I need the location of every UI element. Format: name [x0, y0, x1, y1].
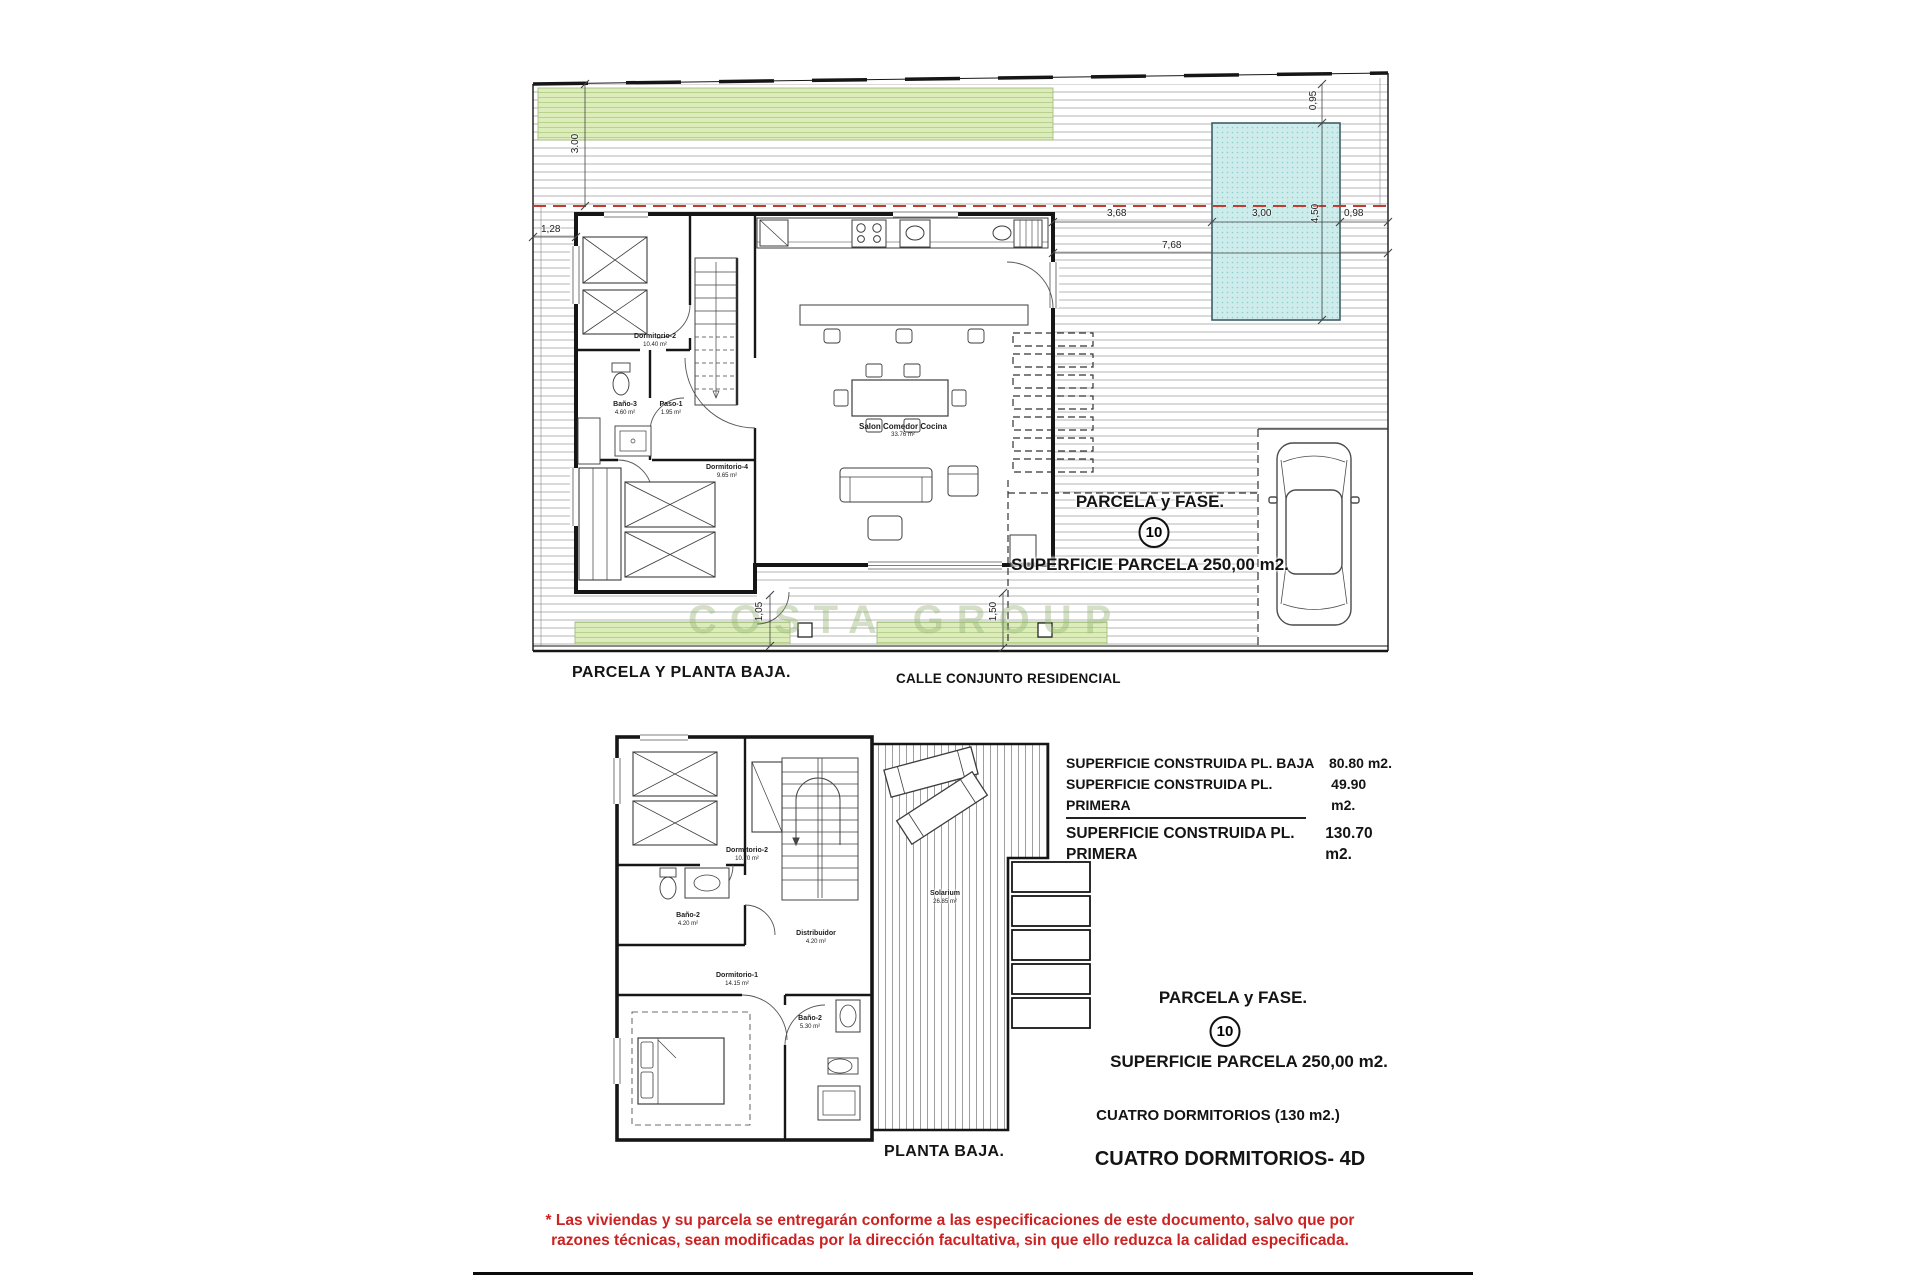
coffee-table-icon: [868, 516, 902, 540]
dim-pool-to-edge: 0,98: [1344, 208, 1363, 219]
room-label-bano2-upper: Baño-24.20 m²: [676, 912, 700, 928]
summary-row-total: SUPERFICIE CONSTRUIDA PL. PRIMERA130.70 …: [1066, 823, 1392, 865]
info-parcel-number-badge: 10: [1210, 1016, 1241, 1047]
armchair-icon: [948, 466, 978, 496]
dim-pool-offset: 0,95: [1308, 91, 1319, 110]
summary-row-primera: SUPERFICIE CONSTRUIDA PL. PRIMERA49.90 m…: [1066, 774, 1392, 816]
disclaimer-line2: razones técnicas, sean modificadas por l…: [430, 1231, 1470, 1251]
bathroom2-fixtures-upper: [660, 868, 729, 899]
street-label: CALLE CONJUNTO RESIDENCIAL: [896, 671, 1121, 686]
dim-pool-width: 3,00: [1252, 208, 1271, 219]
disclaimer-line1: * Las viviendas y su parcela se entregar…: [430, 1211, 1470, 1231]
room-label-bano3: Baño-34.60 m²: [613, 401, 637, 417]
room-label-bano2-lower: Baño-25.30 m²: [798, 1015, 822, 1031]
terrace-steps: [1012, 862, 1090, 1028]
floor-plan-upper: [611, 731, 1090, 1140]
bottom-rule: [473, 1272, 1473, 1275]
room-label-dormitorio2-upper: Dormitorio-210.70 m²: [726, 847, 768, 863]
room-label-salon: Salon Comedor Cocina33.76 m²: [859, 423, 947, 439]
room-label-paso1: Paso-11.95 m²: [660, 401, 683, 417]
disclaimer: * Las viviendas y su parcela se entregar…: [430, 1211, 1470, 1251]
floor-plan-title: PLANTA BAJA.: [884, 1143, 1004, 1161]
room-label-dormitorio2: Dormitorio-210.40 m²: [634, 333, 676, 349]
built-surface-summary: SUPERFICIE CONSTRUIDA PL. BAJA80.80 m2. …: [1066, 753, 1392, 865]
grass-strip-top: [538, 88, 1053, 140]
summary-row-baja: SUPERFICIE CONSTRUIDA PL. BAJA80.80 m2.: [1066, 753, 1392, 774]
info-bedrooms-label: CUATRO DORMITORIOS (130 m2.): [1096, 1107, 1340, 1124]
parcel-area-label: SUPERFICIE PARCELA 250,00 m2.: [1011, 555, 1289, 575]
plan-sheet: COSTA GROUP PARCELA Y PLANTA BAJA. CALLE…: [0, 0, 1920, 1280]
room-label-dormitorio1: Dormitorio-114.15 m²: [716, 972, 758, 988]
dim-back-left: 1,05: [754, 602, 765, 621]
room-label-dormitorio4: Dormitorio-49.65 m²: [706, 464, 748, 480]
dim-front-depth: 3.00: [570, 134, 581, 153]
car-icon: [1269, 443, 1359, 625]
site-plan-title: PARCELA Y PLANTA BAJA.: [572, 664, 791, 682]
stove-icon: [852, 220, 886, 247]
room-label-distribuidor: Distribuidor4.20 m²: [796, 930, 836, 946]
dim-back-right: 1,50: [988, 602, 999, 621]
info-parcel-area-label: SUPERFICIE PARCELA 250,00 m2.: [1110, 1052, 1388, 1072]
room-label-solarium: Solarium26.85 m²: [930, 890, 960, 906]
summary-underline: [1066, 817, 1306, 819]
dim-house-to-pool: 3,68: [1107, 208, 1126, 219]
kitchen-counter: [757, 218, 1048, 248]
parcel-phase-label: PARCELA y FASE.: [1076, 492, 1224, 512]
info-model-label: CUATRO DORMITORIOS- 4D: [1095, 1148, 1365, 1171]
dim-right-total: 7,68: [1162, 240, 1181, 251]
info-parcel-phase-label: PARCELA y FASE.: [1159, 988, 1307, 1008]
dim-side-left: 1,28: [541, 224, 560, 235]
parcel-number-badge: 10: [1139, 517, 1170, 548]
sink-icon: [900, 220, 930, 247]
dim-pool-length: 4,50: [1310, 204, 1321, 223]
